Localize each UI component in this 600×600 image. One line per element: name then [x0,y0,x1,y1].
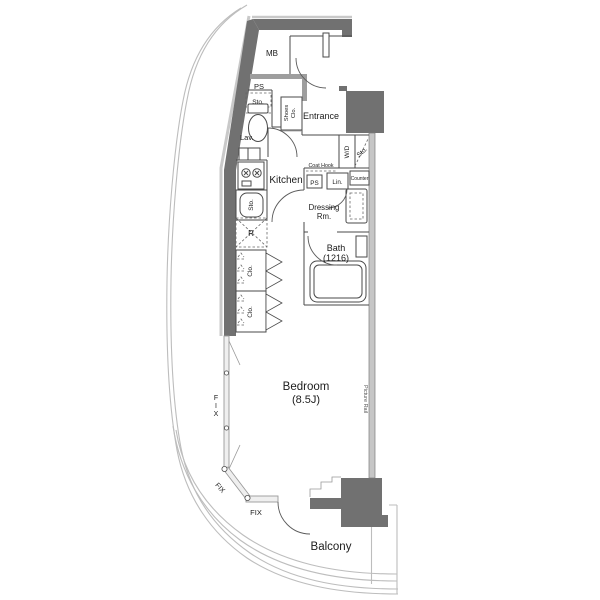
fix-window-diagonal [223,467,250,499]
label-refrigerator: R [248,229,254,238]
label-closet-top: Clo. [247,265,254,277]
svg-text:Clo.: Clo. [291,107,297,118]
room-label-entrance: Entrance [303,111,339,121]
svg-text:Rm.: Rm. [317,212,331,221]
label-linen: Lin. [332,179,342,186]
label-coat-hook: Coat Hook [308,163,333,169]
dressing-door-arc [272,190,304,222]
label-fix-left: FIX [213,395,220,419]
label-ps-dressing: PS [310,180,318,187]
room-label-balcony: Balcony [311,541,352,553]
label-picture-rail: Picture Rail [362,385,368,413]
label-washer-dryer: W/D [344,145,351,158]
lav-sink-icon [239,148,260,160]
svg-text:(1216): (1216) [323,253,349,263]
doors [268,33,347,534]
hanger-icons [237,253,245,325]
room-label-dressing: Dressing Rm. [309,203,340,221]
stove-icon [238,162,264,189]
entrance-door [296,33,329,88]
pillar-top-right [339,86,384,133]
balcony-door-arc [278,502,310,534]
svg-text:Dressing: Dressing [309,203,340,212]
label-sto-lav: Sto. [252,99,264,106]
room-label-lav: Lav. [240,133,254,142]
wall-top [253,19,352,37]
label-closet-bottom: Clo. [247,306,254,318]
svg-text:Bath: Bath [327,243,346,253]
floor-plan-page: MB PS Sto. Shoes Clo. Entrance Lav. W/D … [0,0,600,600]
washstand-icon [346,189,367,223]
picture-rail-wall [369,133,375,478]
corner-steps [310,477,341,497]
room-label-kitchen: Kitchen [269,175,302,186]
svg-text:Bedroom: Bedroom [283,381,330,393]
bath-counter [356,236,367,257]
room-label-bath: Bath (1216) [323,243,349,263]
room-label-mb: MB [266,49,278,58]
windows [222,336,278,502]
bathtub-icon [310,261,366,302]
svg-text:(8.5J): (8.5J) [292,394,320,406]
closet-bifold-doors [266,253,282,330]
room-label-bedroom: Bedroom (8.5J) [283,381,330,406]
label-sto-wd: Sto. [356,146,369,159]
label-sto-kitchen: Sto. [248,199,255,211]
label-counter: Counter [351,176,369,182]
label-fix-bottom: FIX [250,508,262,517]
lav-door [268,128,297,157]
label-ps-top: PS [254,82,264,91]
fix-window-bottom [246,496,278,502]
closets [236,250,282,332]
svg-text:Shoes: Shoes [284,105,290,122]
floor-plan: MB PS Sto. Shoes Clo. Entrance Lav. W/D … [0,0,600,600]
label-fix-diagonal: FIX [213,482,226,495]
fix-window-left [224,336,229,470]
pillar-bottom-right [310,478,388,527]
